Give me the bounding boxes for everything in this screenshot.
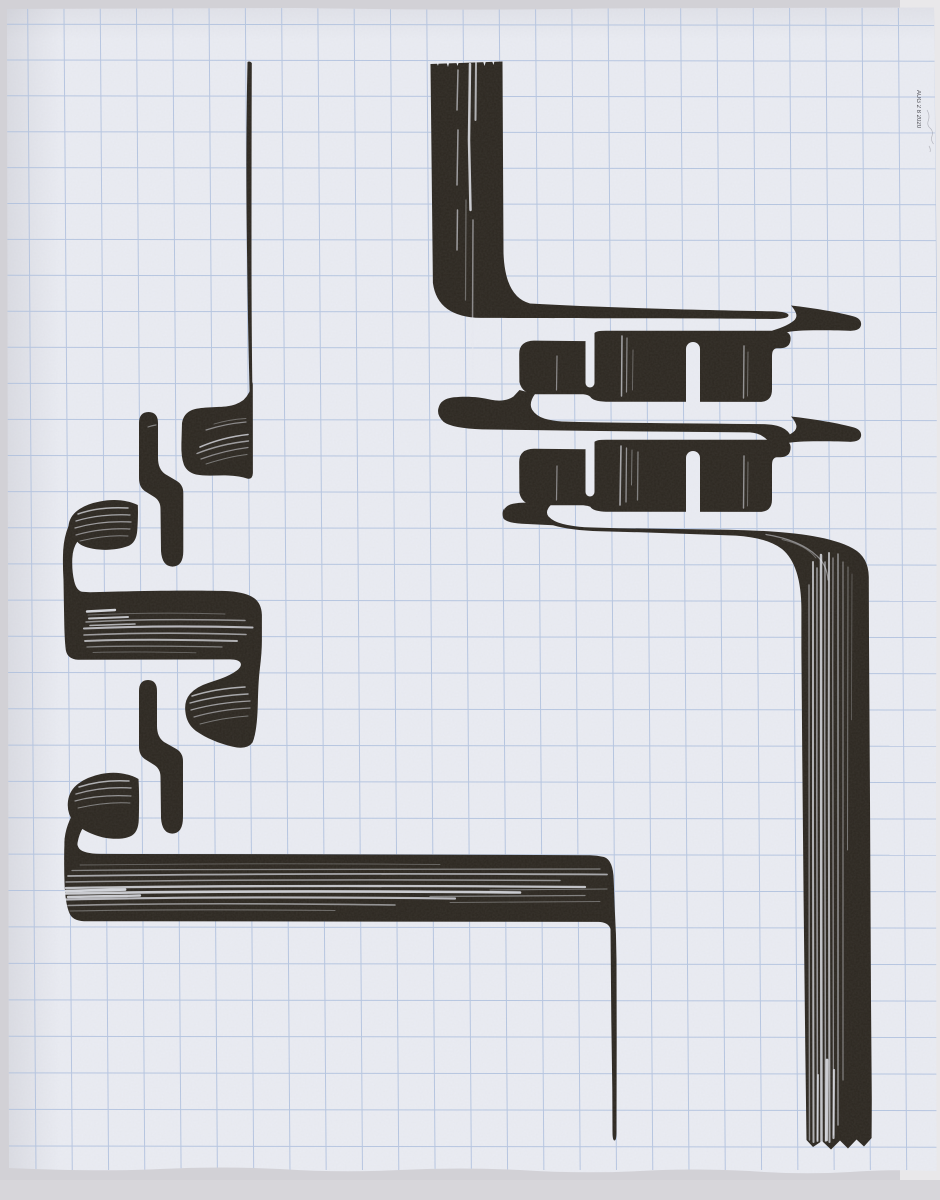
svg-text:AUG 2 8 2020: AUG 2 8 2020	[915, 90, 921, 129]
